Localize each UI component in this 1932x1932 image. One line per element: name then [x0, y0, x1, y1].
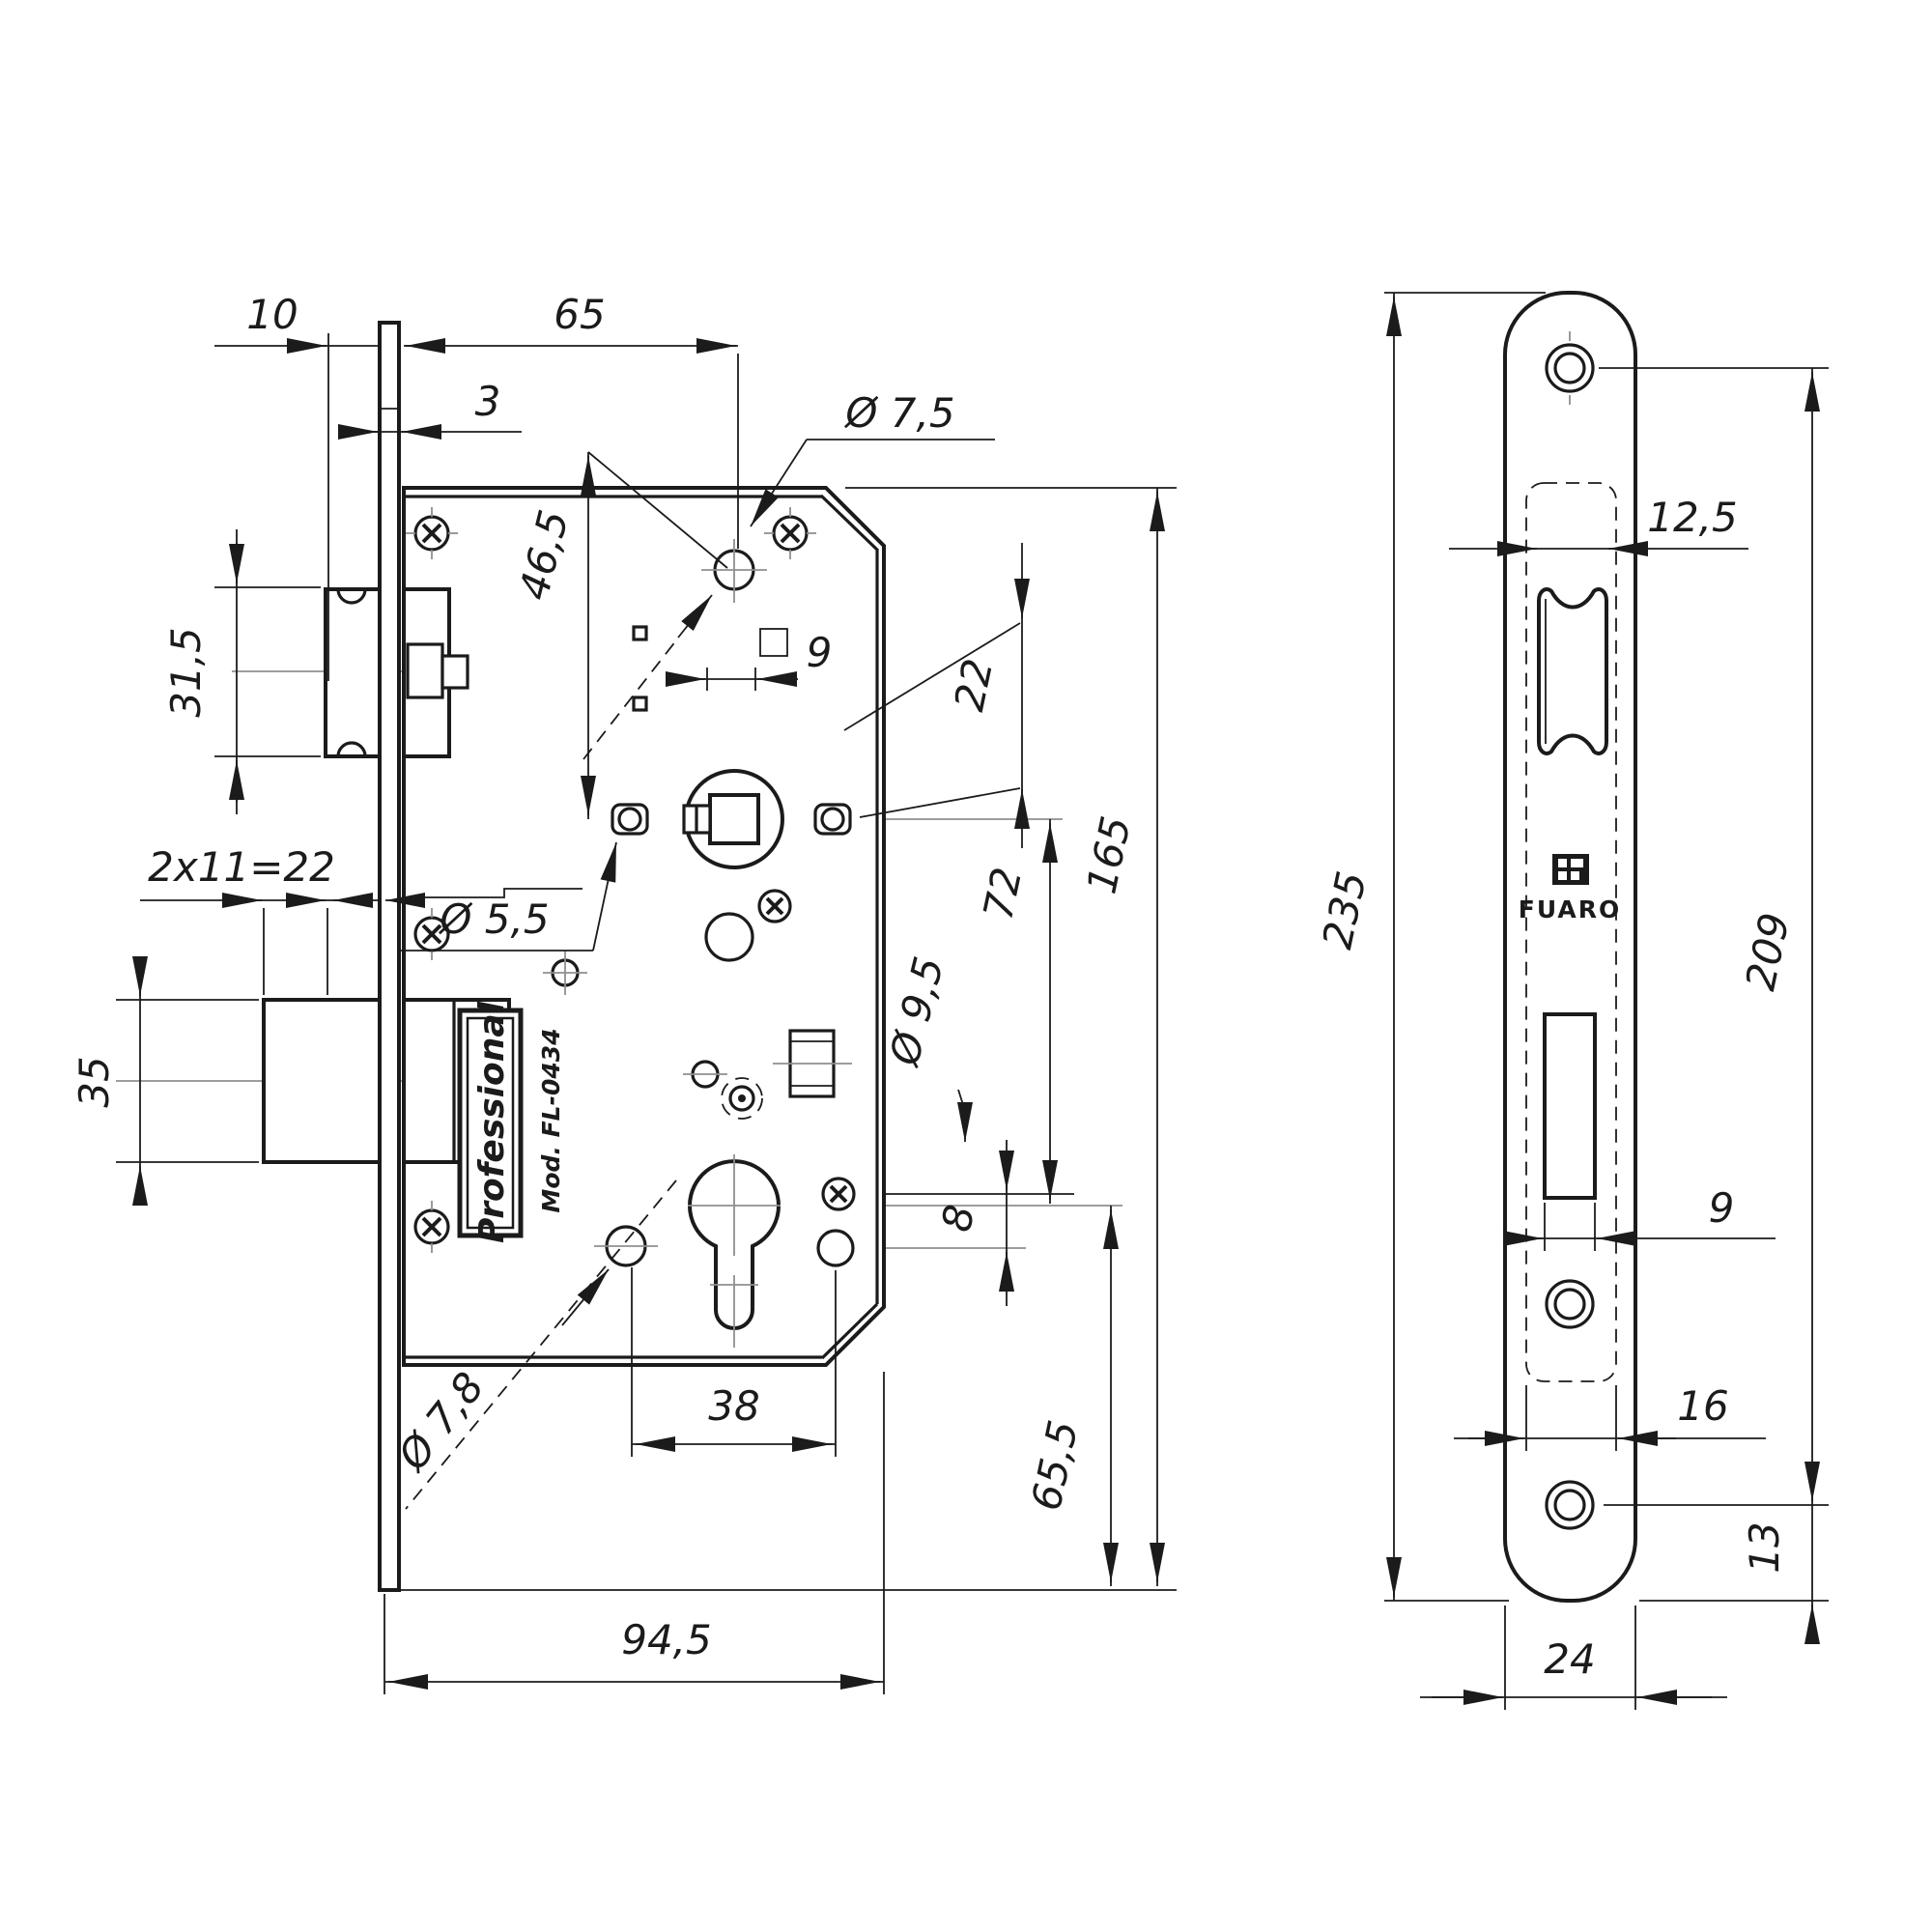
brand-plate-text: Professional	[472, 1001, 512, 1243]
dim-16-text: 16	[1677, 1382, 1728, 1430]
faceplate-screw-bottom	[1547, 1482, 1593, 1528]
dim-8: 8	[932, 1140, 1007, 1306]
dim-13-text: 13	[1741, 1521, 1788, 1573]
hub-nut-right	[815, 805, 850, 834]
side-view: Professional Mod. FL-0434 10 65 3	[71, 291, 1177, 1694]
dim-165-text: 165	[1078, 812, 1141, 898]
dim-35-text: 35	[71, 1056, 118, 1107]
faceplate-screw-middle	[1547, 1281, 1593, 1327]
faceplate-side	[380, 323, 399, 1590]
dim-9-slot-text: 9	[1709, 1184, 1735, 1232]
dim-24: 24	[1420, 1605, 1727, 1710]
dim-945-text: 94,5	[621, 1616, 712, 1663]
dim-315-text: 31,5	[162, 627, 210, 718]
dim-d95: Ø 9,5	[880, 952, 965, 1142]
dim-38-text: 38	[708, 1382, 759, 1430]
dim-3: 3	[338, 378, 522, 432]
fuaro-logo-text: FUARO	[1519, 895, 1621, 923]
dim-10-text: 10	[246, 291, 298, 338]
latch-slot	[1539, 589, 1606, 753]
model-text: Mod. FL-0434	[537, 1028, 565, 1212]
dim-209-text: 209	[1737, 909, 1800, 995]
spring-guide	[722, 1078, 762, 1119]
technical-drawing-svg: Professional Mod. FL-0434 10 65 3	[0, 0, 1932, 1932]
drawing-sheet: Professional Mod. FL-0434 10 65 3	[0, 0, 1932, 1932]
dim-72-text: 72	[974, 864, 1031, 923]
dim-d95-text: Ø 9,5	[880, 952, 952, 1072]
hub-nut-left	[612, 805, 647, 834]
dim-d55-text: Ø 5,5	[438, 895, 549, 943]
dim-22-text: 22	[945, 655, 1002, 715]
screw-bottom-right	[823, 1179, 854, 1209]
dim-2x11-text: 2x11=22	[148, 843, 335, 891]
deadbolt-slot	[1545, 1014, 1595, 1198]
dim-24-text: 24	[1544, 1635, 1595, 1683]
dim-72: 72	[974, 819, 1050, 1204]
dim-9sq-text: 9	[807, 629, 833, 676]
dim-d75-text: Ø 7,5	[843, 389, 954, 437]
dim-655: 65,5	[1022, 1206, 1111, 1586]
dim-235-text: 235	[1314, 867, 1377, 953]
dim-3-text: 3	[475, 378, 501, 425]
dim-65-text: 65	[554, 291, 605, 338]
dim-655-text: 65,5	[1022, 1416, 1087, 1515]
front-view: FUARO 12,5	[1314, 293, 1829, 1710]
screw-aux-center	[759, 891, 790, 922]
brand-label: Professional Mod. FL-0434	[460, 1001, 565, 1243]
dim-125-text: 12,5	[1647, 494, 1738, 541]
